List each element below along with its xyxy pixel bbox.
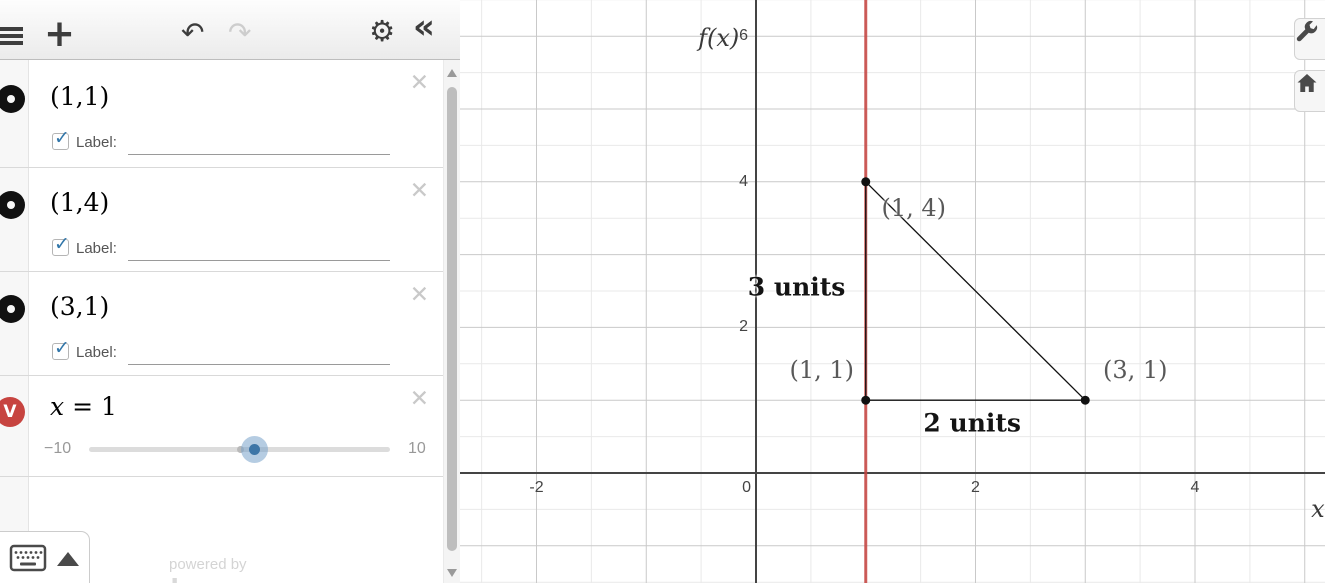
point-label: (1, 4) — [881, 194, 946, 222]
graph-point[interactable] — [861, 177, 870, 186]
graph-settings-button[interactable] — [1294, 18, 1325, 60]
delete-expression-icon[interactable]: ✕ — [410, 180, 429, 203]
desmos-brand-text: desmos — [160, 572, 283, 583]
annotation-label: 3 units — [748, 272, 846, 301]
point-hole — [7, 95, 15, 103]
point-style-icon[interactable] — [0, 85, 25, 113]
slider-min-label[interactable]: −10 — [44, 440, 71, 458]
label-input[interactable] — [128, 361, 390, 365]
home-icon — [1295, 71, 1319, 95]
powered-by-text: powered by — [169, 556, 247, 573]
graph-point[interactable] — [861, 396, 870, 405]
check-icon: ✓ — [54, 127, 70, 149]
point-hole — [7, 305, 15, 313]
x-tick-label: -2 — [529, 479, 543, 497]
y-tick-label: 2 — [739, 318, 748, 336]
collapse-sidebar-icon[interactable]: « — [413, 10, 435, 44]
slider-thumb[interactable] — [241, 436, 268, 463]
expression-row-3: (3,1) ✕ ✓ Label: — [0, 272, 443, 376]
gear-icon[interactable]: ⚙ — [369, 17, 395, 46]
keyboard-icon — [9, 544, 47, 572]
expression-icon-cell[interactable] — [0, 168, 29, 271]
expression-row-2: (1,4) ✕ ✓ Label: — [0, 168, 443, 272]
annotation-label: 2 units — [923, 409, 1021, 438]
axis-title-label: f(x) — [698, 24, 739, 52]
wrench-icon — [1295, 19, 1319, 43]
expression-icon-cell[interactable]: V — [0, 376, 29, 476]
sidebar-scrollbar[interactable] — [443, 60, 460, 583]
x-tick-label: 2 — [971, 479, 980, 497]
label-checkbox[interactable]: ✓ — [52, 133, 69, 150]
scroll-up-icon[interactable] — [447, 69, 457, 77]
menu-bar — [0, 41, 23, 45]
add-expression-button[interactable]: + — [44, 15, 75, 52]
default-viewport-button[interactable] — [1294, 70, 1325, 112]
point-hole — [7, 201, 15, 209]
slider-thumb-dot — [249, 444, 260, 455]
expression-sidebar: + ↶ ↷ ⚙ « (1,1) ✕ ✓ Label: — [0, 0, 460, 583]
delete-expression-icon[interactable]: ✕ — [410, 388, 429, 411]
y-tick-label: 4 — [739, 173, 748, 191]
label-input[interactable] — [128, 151, 390, 155]
point-label: (1, 1) — [789, 356, 854, 384]
slider-variable: x — [50, 392, 64, 421]
expression-icon-cell[interactable] — [0, 60, 29, 167]
label-checkbox[interactable]: ✓ — [52, 239, 69, 256]
desmos-app: + ↶ ↷ ⚙ « (1,1) ✕ ✓ Label: — [0, 0, 1325, 583]
slider-track[interactable] — [89, 447, 390, 452]
slider-max-label[interactable]: 10 — [408, 440, 426, 458]
expression-row-1: (1,1) ✕ ✓ Label: — [0, 60, 443, 168]
expression-icon-cell[interactable] — [0, 272, 29, 375]
label-caption: Label: — [76, 344, 117, 361]
line-style-icon[interactable]: V — [0, 397, 25, 427]
label-caption: Label: — [76, 240, 117, 257]
expression-latex[interactable]: (1,4) — [50, 188, 109, 217]
label-checkbox[interactable]: ✓ — [52, 343, 69, 360]
scrollbar-thumb[interactable] — [447, 87, 457, 551]
expression-list: (1,1) ✕ ✓ Label: (1,4) ✕ — [0, 60, 443, 581]
point-label: (3, 1) — [1103, 356, 1168, 384]
check-icon: ✓ — [54, 233, 70, 255]
scroll-down-icon[interactable] — [447, 569, 457, 577]
expression-latex[interactable]: (3,1) — [50, 292, 109, 321]
delete-expression-icon[interactable]: ✕ — [410, 72, 429, 95]
point-style-icon[interactable] — [0, 295, 25, 323]
y-tick-label: 6 — [739, 27, 748, 45]
graph-paper[interactable]: (1, 1)(1, 4)(3, 1)3 units2 units-2024246… — [460, 0, 1325, 583]
redo-icon[interactable]: ↷ — [228, 19, 251, 47]
label-caption: Label: — [76, 134, 117, 151]
expression-latex[interactable]: x = 1 — [50, 392, 117, 421]
axis-title-label: x — [1311, 495, 1325, 523]
x-tick-label: 0 — [742, 479, 751, 497]
menu-bar — [0, 34, 23, 38]
menu-bar — [0, 27, 23, 31]
label-input[interactable] — [128, 257, 390, 261]
expression-latex[interactable]: (1,1) — [50, 82, 109, 111]
x-tick-label: 4 — [1191, 479, 1200, 497]
sidebar-toolbar: + ↶ ↷ ⚙ « — [0, 0, 460, 60]
expand-keyboard-icon — [57, 552, 79, 566]
keyboard-toggle-button[interactable] — [0, 531, 90, 583]
undo-icon[interactable]: ↶ — [181, 19, 204, 47]
delete-expression-icon[interactable]: ✕ — [410, 284, 429, 307]
slider-equation: = 1 — [72, 392, 117, 421]
graph-point[interactable] — [1081, 396, 1090, 405]
point-style-icon[interactable] — [0, 191, 25, 219]
expression-row-4: V x = 1 ✕ −10 10 — [0, 376, 443, 477]
menu-icon[interactable] — [0, 27, 23, 48]
check-icon: ✓ — [54, 337, 70, 359]
